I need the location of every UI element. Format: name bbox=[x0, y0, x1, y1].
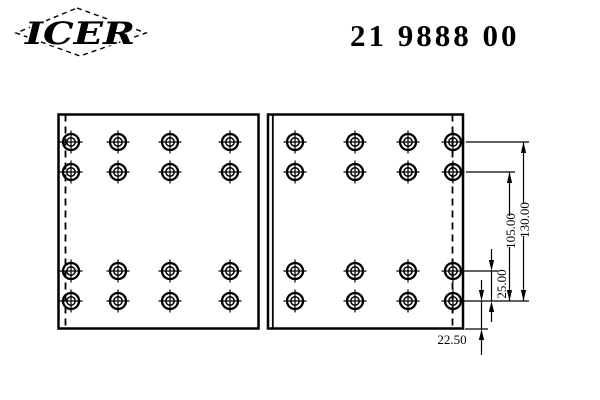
rivet-hole bbox=[284, 260, 307, 283]
rivet-hole bbox=[60, 161, 83, 184]
rivet-hole bbox=[284, 290, 307, 313]
rivet-hole bbox=[344, 290, 367, 313]
rivet-hole bbox=[442, 161, 465, 184]
rivet-holes bbox=[60, 131, 465, 313]
rivet-hole bbox=[60, 290, 83, 313]
rivet-hole bbox=[442, 260, 465, 283]
right-panel-outline bbox=[268, 115, 463, 329]
dimension-25-label: 25.00 bbox=[494, 269, 509, 298]
rivet-hole bbox=[442, 290, 465, 313]
rivet-hole bbox=[107, 290, 130, 313]
arrow-down-icon bbox=[489, 260, 494, 271]
rivet-hole bbox=[397, 290, 420, 313]
rivet-hole bbox=[284, 161, 307, 184]
dimension-105-label: 105.00 bbox=[503, 213, 518, 249]
rivet-hole bbox=[344, 260, 367, 283]
rivet-hole bbox=[159, 260, 182, 283]
rivet-hole bbox=[284, 131, 307, 154]
right-lining-panel bbox=[268, 115, 463, 329]
rivet-hole bbox=[159, 290, 182, 313]
arrow-down-icon bbox=[479, 290, 484, 301]
arrow-down-icon bbox=[521, 290, 526, 301]
rivet-hole bbox=[397, 260, 420, 283]
rivet-hole bbox=[344, 131, 367, 154]
arrow-up-icon bbox=[521, 142, 526, 153]
rivet-hole bbox=[107, 260, 130, 283]
drawing-canvas: 130.00 105.00 25.00 22.50 bbox=[0, 0, 600, 400]
rivet-hole bbox=[219, 131, 242, 154]
rivet-hole bbox=[159, 131, 182, 154]
rivet-hole bbox=[397, 161, 420, 184]
arrow-up-icon bbox=[489, 301, 494, 312]
rivet-hole bbox=[107, 161, 130, 184]
rivet-hole bbox=[397, 131, 420, 154]
drawing-sheet: ICER 21 9888 00 bbox=[0, 0, 600, 400]
rivet-hole bbox=[219, 161, 242, 184]
rivet-hole bbox=[219, 290, 242, 313]
dimension-130-label: 130.00 bbox=[517, 202, 532, 238]
rivet-hole bbox=[60, 260, 83, 283]
dimension-22-50-label: 22.50 bbox=[437, 332, 466, 347]
rivet-hole bbox=[442, 131, 465, 154]
dimension-22-50: 22.50 bbox=[437, 280, 484, 355]
rivet-hole bbox=[344, 161, 367, 184]
rivet-hole bbox=[159, 161, 182, 184]
dimension-25: 25.00 bbox=[489, 249, 509, 322]
arrow-up-icon bbox=[507, 172, 512, 183]
rivet-hole bbox=[107, 131, 130, 154]
rivet-hole bbox=[219, 260, 242, 283]
rivet-hole bbox=[60, 131, 83, 154]
dimension-130: 130.00 bbox=[517, 142, 532, 301]
arrow-up-icon bbox=[479, 329, 484, 340]
